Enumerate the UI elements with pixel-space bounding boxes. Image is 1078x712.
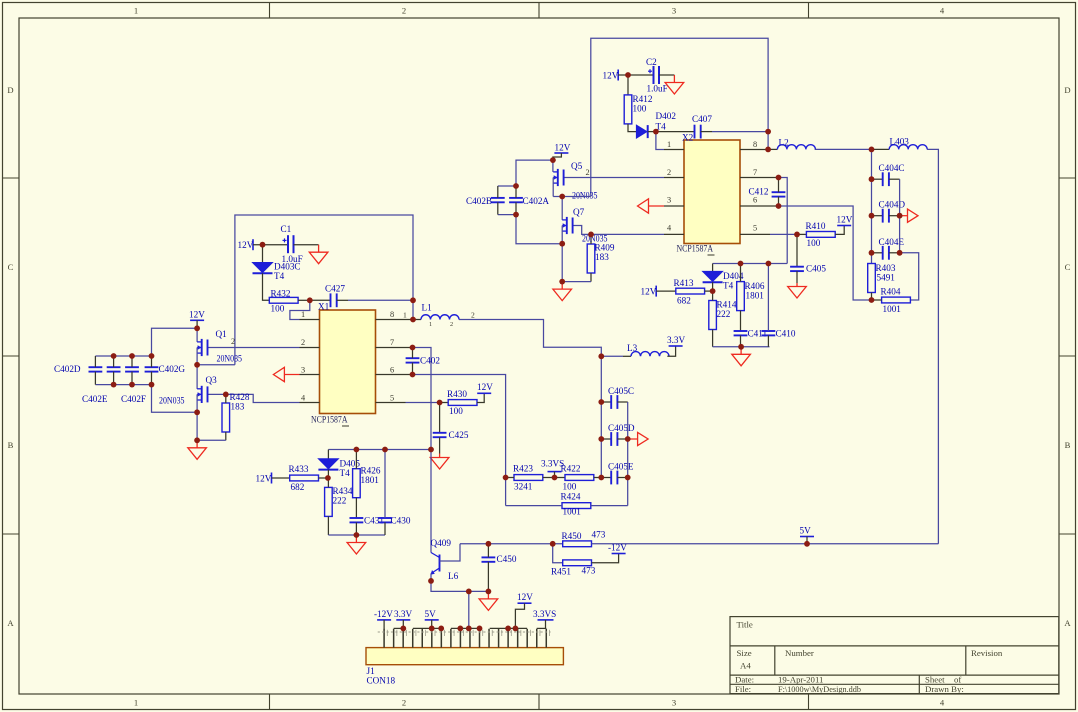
- svg-text:C412: C412: [749, 187, 769, 197]
- svg-text:Q7: Q7: [573, 207, 585, 217]
- svg-text:1: 1: [403, 311, 407, 320]
- svg-text:Q1: Q1: [216, 329, 228, 339]
- svg-text:5491: 5491: [877, 273, 896, 283]
- svg-text:-12V: -12V: [374, 609, 393, 619]
- svg-text:6: 6: [390, 366, 394, 375]
- svg-text:682: 682: [291, 482, 305, 492]
- svg-text:R426: R426: [361, 466, 381, 476]
- svg-text:473: 473: [582, 566, 596, 576]
- svg-text:12V: 12V: [603, 71, 619, 81]
- svg-text:R413: R413: [674, 278, 694, 288]
- svg-text:2: 2: [402, 698, 406, 708]
- svg-text:R434: R434: [333, 486, 353, 496]
- svg-text:C405D: C405D: [608, 423, 635, 433]
- svg-text:R403: R403: [876, 263, 896, 273]
- svg-text:L403: L403: [890, 137, 910, 147]
- svg-text:100: 100: [271, 304, 285, 314]
- svg-text:C402F: C402F: [121, 394, 146, 404]
- svg-text:473: 473: [592, 530, 606, 540]
- svg-text:R430: R430: [447, 389, 467, 399]
- svg-text:CON18: CON18: [367, 676, 396, 686]
- svg-text:R450: R450: [562, 531, 582, 541]
- svg-text:R406: R406: [745, 281, 765, 291]
- svg-text:R409: R409: [595, 243, 615, 253]
- svg-text:C: C: [8, 262, 14, 272]
- svg-text:C404D: C404D: [879, 200, 906, 210]
- svg-text:1001: 1001: [563, 507, 582, 517]
- svg-text:L3: L3: [627, 343, 638, 353]
- svg-text:R412: R412: [633, 94, 653, 104]
- svg-text:C404E: C404E: [879, 237, 905, 247]
- svg-text:3.3V: 3.3V: [394, 609, 412, 619]
- svg-text:19-Apr-2011: 19-Apr-2011: [778, 675, 823, 685]
- svg-text:4: 4: [940, 6, 945, 16]
- svg-text:100: 100: [633, 104, 647, 114]
- svg-text:3241: 3241: [514, 482, 533, 492]
- svg-text:20N035: 20N035: [582, 234, 608, 244]
- svg-text:1.0uF: 1.0uF: [647, 84, 668, 94]
- svg-text:D403C: D403C: [274, 262, 301, 272]
- svg-text:3.3VS: 3.3VS: [533, 609, 556, 619]
- svg-text:T4: T4: [340, 468, 351, 478]
- svg-text:R424: R424: [561, 492, 581, 502]
- svg-text:-12V: -12V: [608, 543, 627, 553]
- svg-text:B: B: [1065, 440, 1071, 450]
- svg-text:20N035: 20N035: [159, 396, 185, 406]
- svg-text:Drawn By:: Drawn By:: [925, 684, 964, 694]
- svg-text:R404: R404: [881, 287, 901, 297]
- svg-text:R432: R432: [271, 289, 291, 299]
- svg-text:2: 2: [231, 337, 235, 346]
- svg-text:Revision: Revision: [971, 648, 1003, 658]
- svg-text:A: A: [7, 618, 14, 628]
- svg-text:2: 2: [667, 168, 671, 177]
- svg-text:L6: L6: [448, 571, 459, 581]
- svg-text:7: 7: [390, 338, 394, 347]
- svg-text:1: 1: [429, 321, 432, 328]
- svg-text:C425: C425: [449, 430, 469, 440]
- svg-text:Q3: Q3: [206, 375, 218, 385]
- svg-text:X1: X1: [318, 302, 330, 312]
- svg-text:F:\1000w\MyDesign.ddb: F:\1000w\MyDesign.ddb: [778, 684, 862, 694]
- svg-text:100: 100: [563, 482, 577, 492]
- svg-text:Date:: Date:: [735, 675, 754, 685]
- svg-text:L2: L2: [779, 137, 790, 147]
- svg-text:C402: C402: [420, 356, 440, 366]
- svg-text:2: 2: [301, 338, 305, 347]
- svg-text:C450: C450: [497, 554, 517, 564]
- svg-text:C402G: C402G: [159, 364, 186, 374]
- svg-text:Title: Title: [737, 620, 753, 630]
- svg-text:3: 3: [672, 6, 676, 16]
- svg-text:C: C: [1065, 262, 1071, 272]
- svg-text:D402: D402: [656, 111, 677, 121]
- svg-text:1: 1: [134, 6, 138, 16]
- svg-text:20N035: 20N035: [217, 354, 243, 364]
- svg-text:C404C: C404C: [879, 163, 905, 173]
- svg-text:L1: L1: [422, 303, 433, 313]
- svg-text:5: 5: [753, 224, 757, 233]
- svg-text:2: 2: [450, 321, 453, 328]
- svg-text:12V: 12V: [477, 382, 493, 392]
- svg-text:1: 1: [667, 140, 671, 149]
- svg-text:Q5: Q5: [571, 161, 583, 171]
- svg-text:20N035: 20N035: [572, 191, 598, 201]
- svg-text:3.3V: 3.3V: [667, 335, 685, 345]
- svg-text:Size: Size: [737, 648, 752, 658]
- svg-text:12V: 12V: [641, 287, 657, 297]
- svg-text:C402B: C402B: [466, 196, 492, 206]
- svg-text:C402E: C402E: [82, 394, 108, 404]
- svg-text:12V: 12V: [837, 215, 853, 225]
- svg-text:1001: 1001: [883, 304, 902, 314]
- svg-text:R422: R422: [561, 464, 581, 474]
- svg-text:100: 100: [449, 406, 463, 416]
- svg-text:R410: R410: [806, 221, 826, 231]
- svg-text:C1: C1: [281, 224, 292, 234]
- svg-text:183: 183: [595, 252, 609, 262]
- svg-text:C402A: C402A: [523, 196, 550, 206]
- svg-text:R451: R451: [551, 567, 571, 577]
- svg-text:5V: 5V: [800, 526, 812, 536]
- svg-text:A4: A4: [740, 661, 751, 671]
- svg-text:12V: 12V: [238, 240, 254, 250]
- svg-text:5: 5: [390, 394, 394, 403]
- svg-text:7: 7: [753, 168, 757, 177]
- svg-text:R428: R428: [230, 392, 250, 402]
- svg-text:8: 8: [390, 310, 394, 319]
- svg-text:1801: 1801: [361, 475, 380, 485]
- svg-text:2: 2: [402, 6, 406, 16]
- svg-text:2: 2: [471, 311, 475, 320]
- svg-text:3: 3: [667, 196, 671, 205]
- svg-text:D: D: [7, 85, 13, 95]
- svg-text:File:: File:: [735, 684, 751, 694]
- svg-text:12V: 12V: [189, 310, 205, 320]
- svg-text:R423: R423: [513, 464, 533, 474]
- svg-text:3: 3: [301, 366, 305, 375]
- svg-text:NCP1587A: NCP1587A: [677, 244, 714, 254]
- svg-text:6: 6: [753, 196, 757, 205]
- svg-text:C427: C427: [325, 284, 345, 294]
- svg-text:222: 222: [717, 309, 731, 319]
- svg-text:T4: T4: [723, 281, 734, 291]
- svg-text:Number: Number: [785, 648, 814, 658]
- svg-text:C410: C410: [776, 329, 796, 339]
- svg-text:3: 3: [672, 698, 676, 708]
- svg-text:12V: 12V: [517, 592, 533, 602]
- svg-text:C431: C431: [364, 516, 384, 526]
- svg-text:J1: J1: [367, 666, 376, 676]
- svg-text:5V: 5V: [425, 609, 437, 619]
- svg-text:A: A: [1064, 618, 1071, 628]
- svg-text:Sheet: Sheet: [925, 675, 945, 685]
- svg-text:C407: C407: [692, 114, 712, 124]
- svg-text:R433: R433: [289, 464, 309, 474]
- svg-text:12V: 12V: [256, 474, 272, 484]
- svg-text:C405: C405: [806, 264, 826, 274]
- svg-text:T4: T4: [274, 271, 285, 281]
- svg-text:C2: C2: [646, 57, 657, 67]
- svg-text:C402D: C402D: [54, 364, 81, 374]
- svg-text:1801: 1801: [746, 291, 765, 301]
- svg-text:2: 2: [586, 168, 590, 177]
- svg-text:X2: X2: [682, 133, 694, 143]
- svg-text:D405: D405: [340, 459, 361, 469]
- svg-text:C430: C430: [391, 516, 411, 526]
- svg-text:222: 222: [333, 496, 347, 506]
- svg-text:B: B: [8, 440, 14, 450]
- svg-text:Q409: Q409: [431, 538, 452, 548]
- svg-text:8: 8: [753, 140, 757, 149]
- svg-text:NCP1587A: NCP1587A: [311, 415, 348, 425]
- svg-text:12V: 12V: [555, 143, 571, 153]
- svg-text:D: D: [1064, 85, 1070, 95]
- svg-text:1: 1: [134, 698, 138, 708]
- svg-text:100: 100: [807, 238, 821, 248]
- svg-text:R414: R414: [717, 300, 737, 310]
- svg-text:4: 4: [940, 698, 945, 708]
- svg-text:C405E: C405E: [608, 462, 634, 472]
- svg-text:of: of: [954, 675, 961, 685]
- svg-text:682: 682: [677, 296, 691, 306]
- svg-text:183: 183: [231, 402, 245, 412]
- svg-text:1: 1: [301, 310, 305, 319]
- svg-text:C411: C411: [748, 329, 768, 339]
- svg-text:C405C: C405C: [608, 386, 634, 396]
